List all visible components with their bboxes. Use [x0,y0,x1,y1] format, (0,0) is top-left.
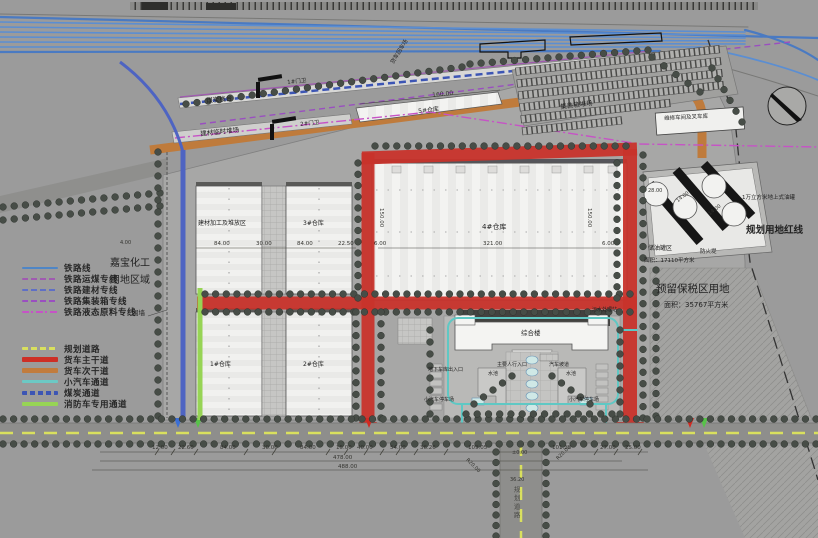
tree-icon [211,441,218,448]
tree-icon [749,441,756,448]
tree-icon [601,143,608,150]
compass-icon [768,87,806,125]
tree-icon [95,441,102,448]
tree-icon [183,101,190,108]
tree-icon [697,89,704,96]
tank-zone-label: 储油罐区 [648,246,672,253]
dim-big-warehouse: 321.00 [483,241,502,247]
tree-icon [579,143,586,150]
tree-icon [223,309,230,316]
tree-icon [640,357,647,364]
tree-icon [543,470,550,477]
legend-row: 货车主干道 [22,354,172,365]
tree-icon [67,198,74,205]
tree-icon [653,323,660,330]
tree-icon [614,238,621,245]
tree-icon [411,441,418,448]
tree-icon [614,295,621,302]
tree-icon [640,380,647,387]
tree-icon [609,411,616,418]
tree-icon [493,470,500,477]
tree-icon [437,143,444,150]
tree-icon [739,416,746,423]
tree-icon [489,59,496,66]
tree-icon [380,441,387,448]
tree-icon [145,204,152,211]
tree-icon [697,416,704,423]
tree-icon [390,416,397,423]
tree-icon [614,171,621,178]
tree-icon [493,459,500,466]
tree-icon [361,309,368,316]
tree-icon [382,291,389,298]
tree-icon [155,209,162,216]
tree-icon [378,320,385,327]
dim-bottom: 22.60 [178,445,194,451]
tree-icon [614,160,621,167]
tree-icon [52,416,59,423]
dim-bottom: 15.00 [336,445,352,451]
tree-icon [308,309,315,316]
tree-icon [89,196,96,203]
tree-icon [74,441,81,448]
tree-icon [0,441,6,448]
tree-icon [493,501,500,508]
tree-icon [348,416,355,423]
warehouse4-label: 4#仓库 [482,224,506,232]
tree-icon [614,182,621,189]
tree-icon [33,214,40,221]
tree-icon [319,309,326,316]
tree-icon [727,97,734,104]
tree-icon [506,441,513,448]
tree-icon [718,416,725,423]
tree-icon [578,52,585,59]
car-route-sample [22,380,58,383]
pedestrian-entry-label: 主要人行入口 [497,363,527,369]
tree-icon [414,291,421,298]
tree-icon [353,391,360,398]
tree-icon [640,197,647,204]
tree-icon [425,291,432,298]
tree-icon [78,210,85,217]
tree-icon [202,291,209,298]
tree-icon [728,416,735,423]
tree-icon [510,291,517,298]
tree-icon [427,327,434,334]
tree-icon [517,441,524,448]
tree-icon [194,99,201,106]
tree-icon [437,67,444,74]
tree-icon [255,309,262,316]
tree-icon [749,416,756,423]
tree-icon [427,351,434,358]
tree-icon [770,441,777,448]
tree-icon [355,283,362,290]
liquid-rail-sample [22,311,58,313]
tree-icon [393,291,400,298]
tree-icon [485,411,492,418]
tree-icon [489,309,496,316]
tree-icon [549,373,556,380]
tree-icon [617,399,624,406]
tree-icon [78,197,85,204]
tree-icon [543,512,550,519]
tree-icon [11,216,18,223]
tree-icon [426,68,433,75]
truck-main-sample [22,357,58,362]
tree-icon [42,416,49,423]
tree-icon [253,441,260,448]
tree-icon [427,375,434,382]
tree-icon [353,368,360,375]
tree-icon [353,344,360,351]
tree-icon [575,411,582,418]
tree-icon [686,416,693,423]
dim-big-warehouse: 150.00 [378,208,384,227]
tree-icon [155,149,162,156]
tree-icon [221,416,228,423]
tree-icon [644,441,651,448]
tree-icon [490,387,497,394]
tree-icon [617,351,624,358]
owner-area-label: 用地区域 [110,275,150,286]
tree-icon [74,416,81,423]
tree-icon [293,86,300,93]
tree-icon [155,161,162,168]
tree-icon [584,291,591,298]
tree-icon [31,416,38,423]
tree-icon [401,416,408,423]
dim-total: 488.00 [338,464,357,470]
tree-icon [234,309,241,316]
tree-icon [552,411,559,418]
tree-icon [306,416,313,423]
dim-road-level: ±0.00 [512,451,527,457]
tree-icon [404,143,411,150]
tree-icon [355,227,362,234]
tree-icon [308,291,315,298]
tree-icon [359,416,366,423]
tree-icon [353,332,360,339]
tree-icon [393,309,400,316]
tree-icon [614,272,621,279]
tree-icon [543,459,550,466]
tree-icon [329,309,336,316]
tree-icon [499,291,506,298]
tree-icon [454,441,461,448]
material-processing-label: 建材加工及堆放区 [198,221,246,228]
tree-icon [478,291,485,298]
tree-icon [653,345,660,352]
material-processing-building [196,186,262,294]
tank-note-label: 1万立方米地上式油罐 [742,195,795,201]
tree-icon [640,266,647,273]
tree-icon [802,416,809,423]
tree-icon [327,416,334,423]
office-label: 综合楼 [521,330,541,337]
tree-icon [21,416,28,423]
tree-icon [380,416,387,423]
tree-icon [493,522,500,529]
legend-row: 消防车专用通道 [22,398,172,409]
tree-icon [200,441,207,448]
tree-icon [792,441,799,448]
tree-icon [355,238,362,245]
tree-icon [443,441,450,448]
tree-icon [612,143,619,150]
tree-icon [640,300,647,307]
tree-icon [353,379,360,386]
tree-icon [653,401,660,408]
tree-icon [640,152,647,159]
tree-icon [467,309,474,316]
dim-bottom: 84.00 [300,445,316,451]
tree-icon [493,449,500,456]
tree-icon [249,92,256,99]
tree-icon [733,108,740,115]
tree-icon [433,416,440,423]
tree-icon [614,250,621,257]
tree-icon [645,47,652,54]
tree-icon [653,379,660,386]
fence-label: 围墙 [132,310,145,317]
warehouse3-label: 3#仓库 [303,221,324,228]
tree-icon [414,70,421,77]
car-ramp-label: 汽车坡道 [549,363,569,369]
tree-icon [425,309,432,316]
tree-icon [654,416,661,423]
tree-icon [282,87,289,94]
tree-icon [316,416,323,423]
rail-dock-strip [262,312,286,416]
tree-icon [355,295,362,302]
tree-icon [116,441,123,448]
dim-bottom: 84.00 [220,445,236,451]
tree-icon [623,143,630,150]
sewage-label: 污水处理站 [592,308,617,314]
site-plan: 铁路线 铁路运煤专线 铁路建材专线 铁路集装箱专线 铁路液态原料专线 规划道路 … [0,0,818,538]
tree-icon [781,441,788,448]
tree-icon [448,65,455,72]
tree-icon [531,309,538,316]
tree-icon [617,363,624,370]
tree-icon [355,171,362,178]
legend-row: 规划道路 [22,343,172,354]
tree-icon [285,441,292,448]
tree-icon [707,416,714,423]
tree-icon [355,160,362,167]
tree-icon [169,441,176,448]
reserved-area-label: 面积：35767平方米 [664,302,728,310]
pool-label: 水池 [566,372,576,378]
tree-icon [84,441,91,448]
tree-icon [378,332,385,339]
tree-icon [654,441,661,448]
tree-icon [640,163,647,170]
tree-icon [137,441,144,448]
tree-icon [145,191,152,198]
tree-icon [653,356,660,363]
tree-icon [813,441,818,448]
tree-icon [653,300,660,307]
tree-icon [623,416,630,423]
tree-icon [427,387,434,394]
dim-total: 478.00 [333,455,352,461]
tree-icon [297,291,304,298]
legend-row: 铁路集装箱专线 [22,295,172,306]
tree-icon [0,217,6,224]
tree-icon [126,441,133,448]
tree-icon [242,441,249,448]
tree-icon [718,441,725,448]
tree-icon [155,233,162,240]
tree-icon [155,245,162,252]
dim-bottom: 25.00 [625,445,641,451]
tree-icon [378,309,385,316]
tree-icon [95,416,102,423]
tree-icon [470,143,477,150]
tree-icon [355,261,362,268]
tree-icon [640,232,647,239]
tree-icon [739,119,746,126]
tree-icon [404,291,411,298]
tree-icon [520,309,527,316]
car-parking-label: 小汽车停车场 [569,398,599,404]
dim-big-warehouse: 6.00 [374,241,386,247]
tree-icon [478,309,485,316]
tree-icon [155,173,162,180]
tree-icon [557,143,564,150]
tree-icon [570,416,577,423]
tree-icon [640,209,647,216]
dim-bottom: 27.00 [600,445,616,451]
tree-icon [232,416,239,423]
tree-icon [89,209,96,216]
tree-icon [616,309,623,316]
tree-icon [411,416,418,423]
legend-row: 小汽车通道 [22,376,172,387]
tree-icon [56,199,63,206]
tree-icon [359,77,366,84]
tree-icon [404,309,411,316]
tree-icon [640,186,647,193]
tree-icon [427,411,434,418]
tree-icon [653,390,660,397]
tree-icon [792,416,799,423]
tree-icon [496,441,503,448]
tree-icon [369,416,376,423]
tree-icon [617,411,624,418]
tree-icon [200,416,207,423]
tree-icon [467,61,474,68]
tree-icon [338,416,345,423]
owner-area-label: 嘉宝化工 [110,258,150,269]
tree-icon [446,309,453,316]
tree-icon [378,403,385,410]
tree-icon [614,227,621,234]
tree-icon [123,193,130,200]
tree-icon [617,339,624,346]
tree-icon [337,80,344,87]
tree-icon [653,334,660,341]
tree-icon [640,277,647,284]
tree-icon [392,73,399,80]
tree-icon [457,309,464,316]
tree-icon [530,411,537,418]
tree-icon [614,205,621,212]
tree-icon [617,387,624,394]
tree-icon [617,327,624,334]
tree-icon [52,441,59,448]
tree-icon [492,143,499,150]
tree-icon [528,441,535,448]
reserved-zone-label: 预留保税区用地 [656,284,730,296]
tree-icon [590,143,597,150]
dim-big-warehouse: 6.00 [602,241,614,247]
tree-icon [101,195,108,202]
tree-icon [155,197,162,204]
tree-icon [499,380,506,387]
pool-label: 水池 [488,372,498,378]
tree-icon [563,291,570,298]
tree-icon [31,441,38,448]
tree-icon [355,182,362,189]
dim-bottom: 36.26 [420,445,436,451]
tree-icon [478,60,485,67]
tree-icon [381,74,388,81]
tree-icon [137,416,144,423]
tree-icon [543,491,550,498]
tree-icon [361,291,368,298]
tree-icon [304,84,311,91]
tree-icon [126,416,133,423]
tree-icon [446,291,453,298]
tree-icon [255,291,262,298]
tree-icon [622,48,629,55]
tree-icon [543,501,550,508]
tree-icon [709,65,716,72]
legend-row: 货车次干道 [22,365,172,376]
warehouse2-label: 2#仓库 [303,362,324,369]
tree-icon [169,416,176,423]
tree-icon [697,441,704,448]
tree-icon [260,90,267,97]
tree-icon [265,309,272,316]
tree-icon [155,185,162,192]
tree-icon [611,49,618,56]
tree-icon [45,213,52,220]
tree-icon [471,401,478,408]
tree-icon [739,441,746,448]
dim-bottom: 40.00 [357,445,373,451]
tree-icon [353,320,360,327]
tree-icon [474,411,481,418]
tree-icon [353,403,360,410]
tree-icon [580,416,587,423]
tree-icon [158,416,165,423]
tree-icon [580,441,587,448]
tree-icon [481,143,488,150]
coal-route-sample [22,391,58,395]
tree-icon [552,309,559,316]
tree-icon [524,143,531,150]
legend-label: 消防车专用通道 [64,398,127,410]
tree-icon [457,291,464,298]
tree-icon [383,143,390,150]
tree-icon [33,201,40,208]
tree-icon [614,193,621,200]
